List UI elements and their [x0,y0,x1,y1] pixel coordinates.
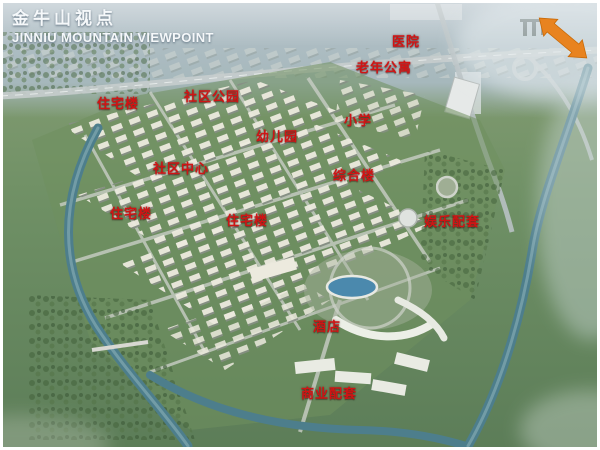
aerial-masterplan-view: 金牛山视点 JINNIU MOUNTAIN VIEWPOINT 医院 老年公寓 … [0,0,600,450]
dome-building [399,209,417,227]
map-label-complex-building: 综合楼 [333,165,375,184]
viewpoint-title-en: JINNIU MOUNTAIN VIEWPOINT [12,30,214,45]
map-label-primary-school: 小学 [344,110,372,129]
map-label-hospital: 医院 [392,31,420,50]
map-label-kindergarten: 幼儿园 [256,126,298,145]
map-label-senior-apartments: 老年公寓 [356,57,412,76]
map-label-commercial-facilities: 商业配套 [301,383,357,402]
pond [327,276,377,298]
title-block: 金牛山视点 JINNIU MOUNTAIN VIEWPOINT [12,4,214,45]
map-label-residential-2: 住宅楼 [110,203,152,222]
map-label-community-park: 社区公园 [184,86,240,105]
map-label-residential-1: 住宅楼 [97,93,139,112]
aerial-rendering [0,0,600,450]
map-label-residential-3: 住宅楼 [226,210,268,229]
map-label-entertainment-facilities: 娱乐配套 [424,211,480,230]
direction-arrow-icon [530,10,600,70]
viewpoint-title-cn: 金牛山视点 [12,4,214,29]
map-label-community-center: 社区中心 [153,158,209,177]
map-label-hotel: 酒店 [313,316,341,335]
